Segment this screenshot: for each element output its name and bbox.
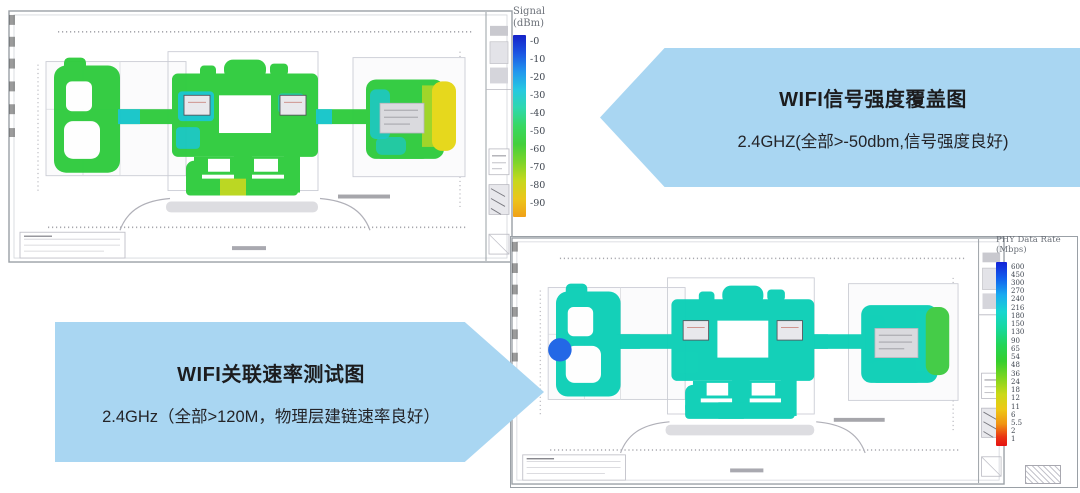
colorbar-tick: 54 xyxy=(1011,354,1024,361)
phy-colorbar-ticks: 6004503002702402161801501309065544836241… xyxy=(1011,262,1024,444)
colorbar-tick: 216 xyxy=(1011,305,1024,312)
colorbar-tick: -70 xyxy=(530,163,545,173)
phy-colorbar-gradient xyxy=(996,262,1007,446)
signal-coverage-sheet xyxy=(8,10,513,263)
colorbar-tick: -10 xyxy=(530,55,545,65)
phy-colorbar: PHY Data Rate (Mbps) 6004503002702402161… xyxy=(996,236,1080,446)
slide-canvas: Signal (dBm) -0-10-20-30-40-50-60-70-80-… xyxy=(0,0,1080,493)
colorbar-tick: 65 xyxy=(1011,346,1024,353)
phy-rate-sheet xyxy=(510,236,1078,488)
colorbar-tick: 180 xyxy=(1011,313,1024,320)
colorbar-tick: -50 xyxy=(530,127,545,137)
sheet-corner-stamp xyxy=(1025,465,1061,484)
signal-colorbar-ticks: -0-10-20-30-40-50-60-70-80-90 xyxy=(530,35,545,209)
colorbar-tick: 240 xyxy=(1011,296,1024,303)
phy-colorbar-header: PHY Data Rate (Mbps) xyxy=(996,236,1080,256)
signal-colorbar-gradient xyxy=(513,35,526,217)
colorbar-tick: 300 xyxy=(1011,280,1024,287)
colorbar-tick: -20 xyxy=(530,73,545,83)
phy-colorbar-unit: (Mbps) xyxy=(996,246,1080,256)
rate-callout-banner: WIFI关联速率测试图 2.4GHz（全部>120M，物理层建链速率良好） xyxy=(55,322,544,462)
colorbar-tick: -0 xyxy=(530,37,545,47)
signal-colorbar: Signal (dBm) -0-10-20-30-40-50-60-70-80-… xyxy=(513,6,579,217)
colorbar-tick: 150 xyxy=(1011,321,1024,328)
colorbar-tick: 48 xyxy=(1011,362,1024,369)
colorbar-tick: 12 xyxy=(1011,395,1024,402)
colorbar-tick: 6 xyxy=(1011,412,1024,419)
signal-banner-subtitle: 2.4GHZ(全部>-50dbm,信号强度良好) xyxy=(738,128,1009,152)
signal-banner-title: WIFI信号强度覆盖图 xyxy=(779,83,967,112)
colorbar-tick: 24 xyxy=(1011,379,1024,386)
colorbar-tick: 36 xyxy=(1011,371,1024,378)
colorbar-tick: 270 xyxy=(1011,288,1024,295)
colorbar-tick: 11 xyxy=(1011,404,1024,411)
colorbar-tick: 5.5 xyxy=(1011,420,1024,427)
rate-banner-subtitle: 2.4GHz（全部>120M，物理层建链速率良好） xyxy=(102,403,440,427)
colorbar-tick: -60 xyxy=(530,145,545,155)
signal-coverage-floorplan xyxy=(8,10,513,263)
colorbar-tick: 2 xyxy=(1011,428,1024,435)
rate-banner-title: WIFI关联速率测试图 xyxy=(177,358,365,387)
colorbar-tick: 600 xyxy=(1011,264,1024,271)
colorbar-tick: 130 xyxy=(1011,329,1024,336)
colorbar-tick: -40 xyxy=(530,109,545,119)
colorbar-tick: 90 xyxy=(1011,338,1024,345)
colorbar-tick: 1 xyxy=(1011,436,1024,443)
signal-colorbar-title: Signal xyxy=(513,6,579,18)
colorbar-tick: -80 xyxy=(530,181,545,191)
phy-rate-floorplan xyxy=(511,237,1005,485)
signal-callout-banner: WIFI信号强度覆盖图 2.4GHZ(全部>-50dbm,信号强度良好) xyxy=(600,48,1080,187)
colorbar-tick: 450 xyxy=(1011,272,1024,279)
signal-colorbar-unit: (dBm) xyxy=(513,18,579,30)
signal-colorbar-header: Signal (dBm) xyxy=(513,6,579,29)
colorbar-tick: -90 xyxy=(530,199,545,209)
colorbar-tick: -30 xyxy=(530,91,545,101)
colorbar-tick: 18 xyxy=(1011,387,1024,394)
